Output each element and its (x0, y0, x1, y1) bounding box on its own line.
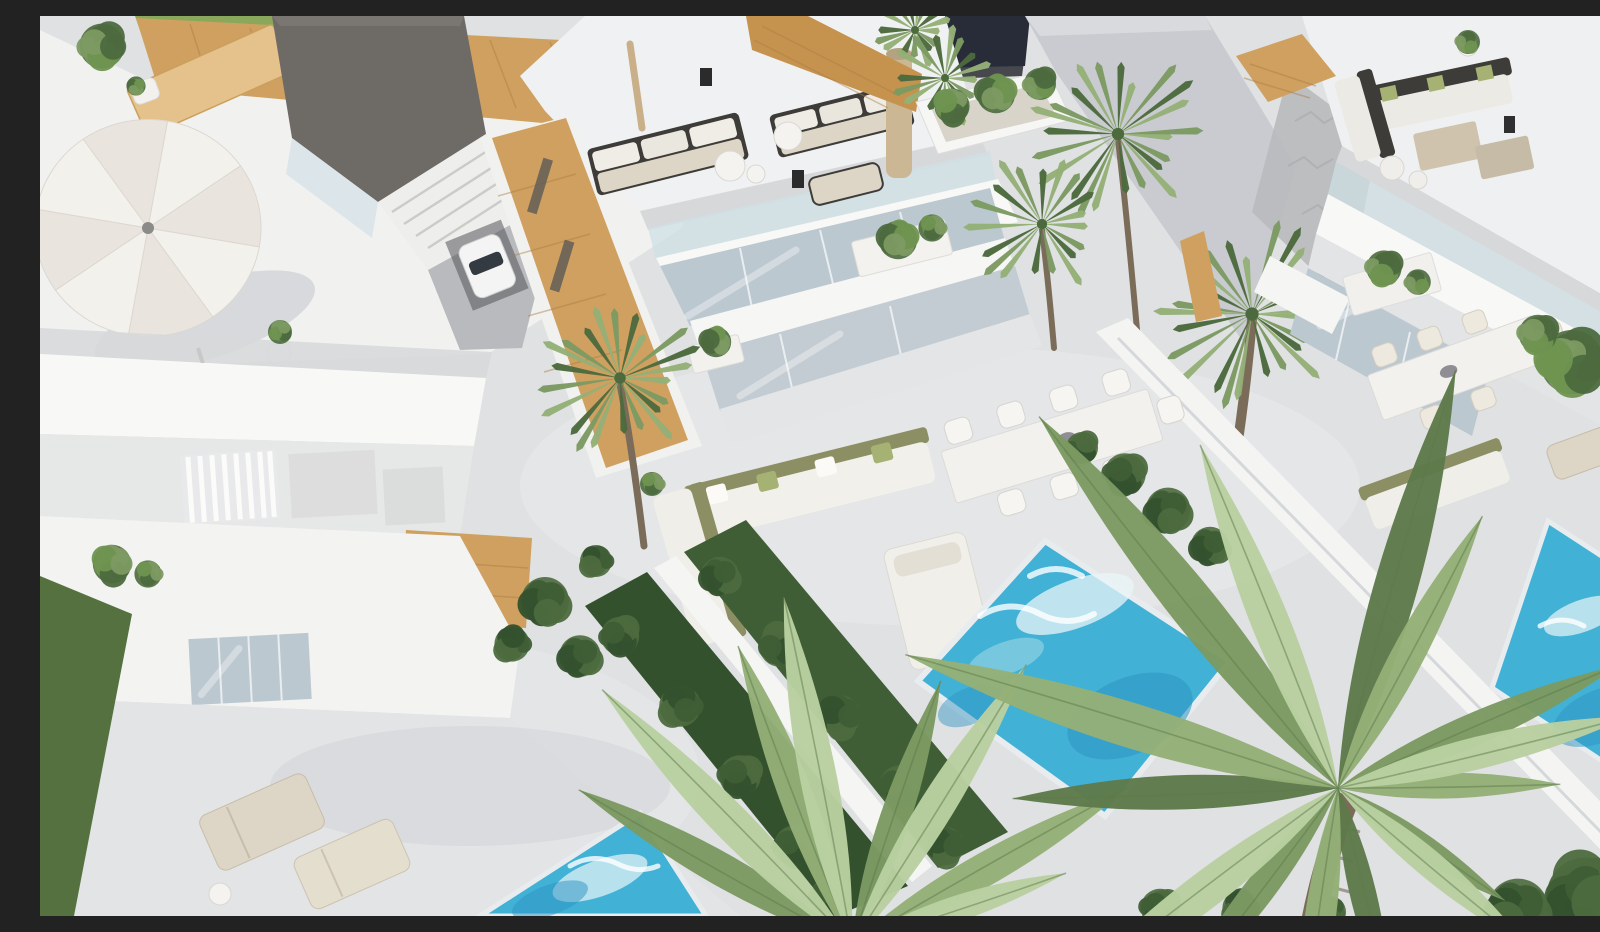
lantern (792, 170, 804, 188)
coffee-table (774, 122, 802, 150)
pouf (1409, 171, 1427, 189)
pouf (1380, 156, 1404, 180)
side-table (715, 151, 745, 181)
side-table (747, 165, 765, 183)
bush (126, 76, 145, 95)
architectural-render: Aerial 3D architectural rendering of a m… (40, 16, 1600, 916)
lantern (700, 68, 712, 86)
side-table (209, 883, 231, 905)
lantern (1504, 116, 1515, 133)
bush (268, 320, 292, 344)
glass-door (188, 633, 311, 705)
balcony-curtains (180, 449, 281, 526)
